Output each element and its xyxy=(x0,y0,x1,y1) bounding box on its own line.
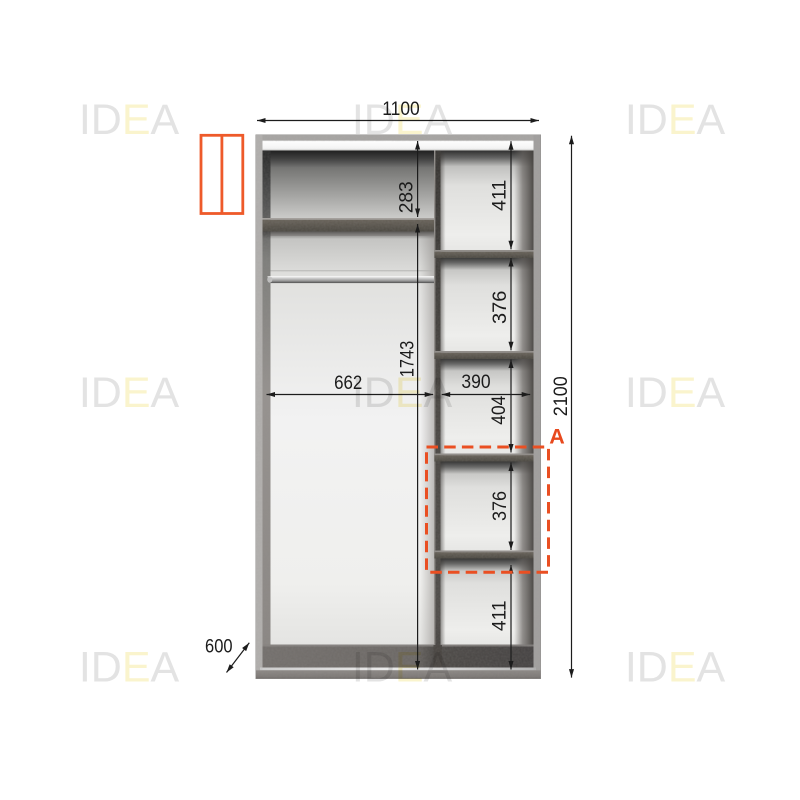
svg-text:283: 283 xyxy=(396,181,417,213)
svg-text:411: 411 xyxy=(490,601,511,632)
svg-text:IDEA: IDEA xyxy=(79,369,180,417)
svg-text:2100: 2100 xyxy=(551,376,572,416)
svg-text:404: 404 xyxy=(489,395,510,424)
svg-text:IDEA: IDEA xyxy=(625,643,726,691)
svg-text:411: 411 xyxy=(490,180,511,211)
svg-text:IDEA: IDEA xyxy=(352,96,453,144)
svg-text:390: 390 xyxy=(461,372,490,393)
svg-text:IDEA: IDEA xyxy=(79,643,180,691)
svg-text:376: 376 xyxy=(490,291,511,324)
svg-text:A: A xyxy=(549,425,565,449)
svg-text:376: 376 xyxy=(490,491,511,521)
svg-text:IDEA: IDEA xyxy=(352,643,453,691)
svg-text:600: 600 xyxy=(205,637,233,658)
svg-text:IDEA: IDEA xyxy=(352,369,453,417)
svg-text:IDEA: IDEA xyxy=(79,96,180,144)
svg-text:IDEA: IDEA xyxy=(625,96,726,144)
svg-text:IDEA: IDEA xyxy=(625,369,726,417)
